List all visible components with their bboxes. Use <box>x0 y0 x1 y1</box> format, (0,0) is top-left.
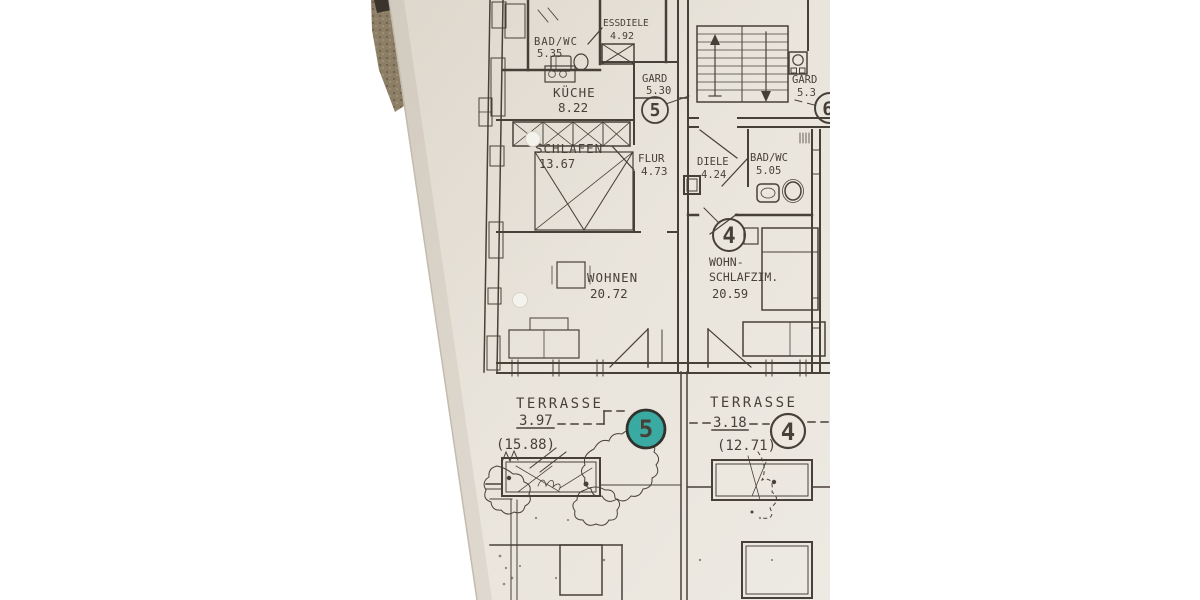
room-label-gard6: GARD <box>792 74 817 86</box>
room-area-essdiele: 4.92 <box>610 31 634 42</box>
room-area-wohnschlafzim: 20.59 <box>712 287 748 301</box>
unit-marker-6-stair-number: 6 <box>822 98 833 120</box>
room-area-flur: 4.73 <box>641 165 668 178</box>
room-label-gard5: GARD <box>642 73 667 85</box>
room-area-gard6: 5.3 <box>797 87 816 99</box>
room-area-diele: 4.24 <box>701 169 726 181</box>
unit-marker-5-terrace-number: 5 <box>639 415 653 443</box>
room-area-kueche: 8.22 <box>558 100 588 115</box>
room-label-essdiele: ESSDIELE <box>603 18 649 29</box>
terrace-left-counted: 3.97 <box>519 413 553 429</box>
room-label-diele: DIELE <box>697 156 729 168</box>
room-area-badwc4: 5.05 <box>756 165 781 177</box>
room-label-wohnschlafzim-2: SCHLAFZIM. <box>709 270 778 284</box>
terrace-left-label: TERRASSE <box>516 396 603 412</box>
unit-marker-4-room-number: 4 <box>722 224 735 249</box>
unit-marker-5-flur-number: 5 <box>650 100 661 121</box>
unit-marker-5-terrace-highlighted: 5 <box>627 410 665 448</box>
room-label-schlafen: SCHLAFEN <box>535 141 603 156</box>
terrace-right-counted: 3.18 <box>713 415 747 431</box>
room-area-schlafen: 13.67 <box>539 157 575 171</box>
room-area-wohnen: 20.72 <box>590 286 628 301</box>
room-label-badwc4: BAD/WC <box>750 152 788 164</box>
terrace-right-label: TERRASSE <box>710 395 797 411</box>
floorplan-svg: BAD/WC 5.35 ESSDIELE 4.92 KÜCHE 8.22 GAR… <box>0 0 1200 600</box>
room-label-wohnen: WOHNEN <box>587 270 638 285</box>
room-area-badwc5: 5.35 <box>537 48 562 60</box>
room-label-flur: FLUR <box>638 152 665 165</box>
floorplan-photo: BAD/WC 5.35 ESSDIELE 4.92 KÜCHE 8.22 GAR… <box>0 0 1200 600</box>
terrace-left-full: (15.88) <box>496 437 555 453</box>
room-label-wohnschlafzim-1: WOHN- <box>709 255 744 269</box>
room-area-gard5: 5.30 <box>646 85 671 97</box>
terrace-right-full: (12.71) <box>717 438 776 454</box>
unit-marker-4-terrace-number: 4 <box>781 418 795 446</box>
room-label-badwc5: BAD/WC <box>534 36 578 48</box>
room-label-kueche: KÜCHE <box>553 84 596 100</box>
